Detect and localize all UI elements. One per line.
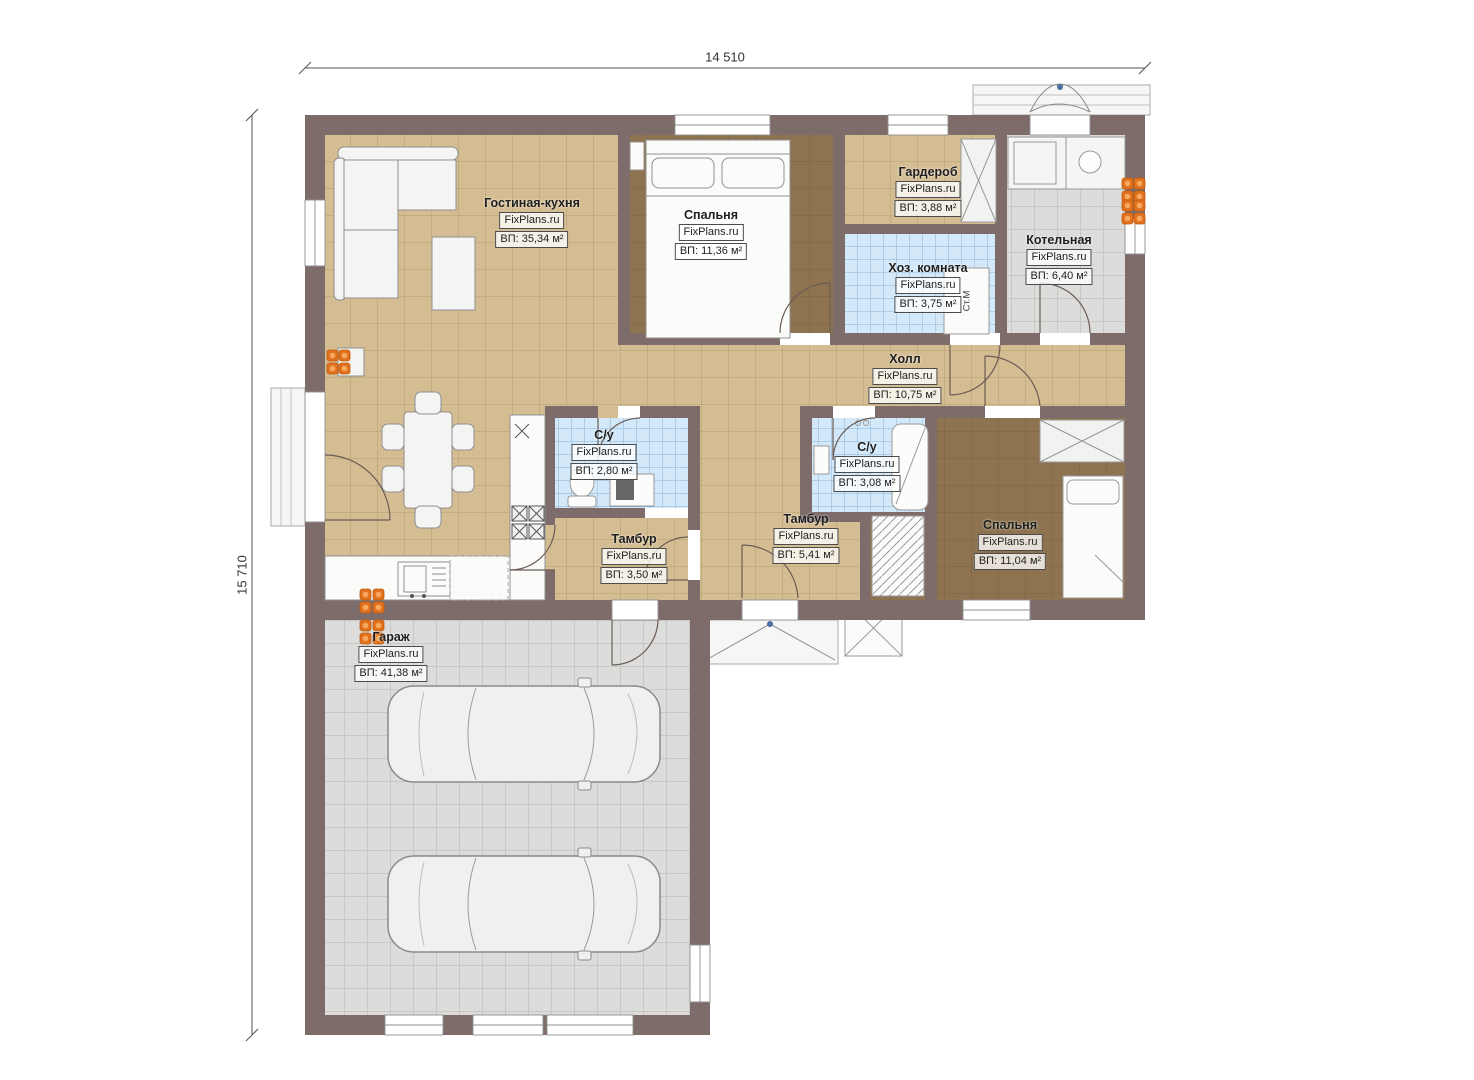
floor-plan-page: 14 510 15 710 Ст.М Гостиная-кухня FixPla…: [0, 0, 1474, 1080]
side-door-opening: [305, 392, 325, 522]
room-area: ВП: 11,36 м²: [675, 243, 747, 260]
room-brand: FixPlans.ru: [895, 181, 960, 198]
chair: [415, 506, 441, 528]
room-brand: FixPlans.ru: [571, 444, 636, 461]
room-label-vestibule-1: Тамбур FixPlans.ru ВП: 5,41 м²: [772, 512, 839, 564]
room-area: ВП: 3,88 м²: [894, 200, 961, 217]
wardrobe-room-fixtures: [961, 139, 996, 222]
room-label-bedroom-2: Спальня FixPlans.ru ВП: 11,04 м²: [974, 518, 1046, 570]
pillow: [652, 158, 714, 188]
car-1: [388, 678, 660, 790]
room-label-garage: Гараж FixPlans.ru ВП: 41,38 м²: [354, 630, 427, 682]
boiler-unit: [1014, 142, 1056, 184]
room-name: Тамбур: [772, 512, 839, 526]
chair: [452, 424, 474, 450]
room-label-living-kitchen: Гостиная-кухня FixPlans.ru ВП: 35,34 м²: [484, 196, 580, 248]
closet-shelving: [872, 516, 924, 596]
room-brand: FixPlans.ru: [834, 456, 899, 473]
room-label-wardrobe: Гардероб FixPlans.ru ВП: 3,88 м²: [894, 165, 961, 217]
room-brand: FixPlans.ru: [977, 534, 1042, 551]
room-area: ВП: 6,40 м²: [1025, 268, 1092, 285]
room-name: Котельная: [1025, 233, 1092, 247]
room-brand: FixPlans.ru: [1026, 249, 1091, 266]
room-name: Спальня: [974, 518, 1046, 532]
room-area: ВП: 2,80 м²: [570, 463, 637, 480]
room-label-bathroom-2: С/у FixPlans.ru ВП: 3,08 м²: [833, 440, 900, 492]
room-brand: FixPlans.ru: [872, 368, 937, 385]
dimension-height: 15 710: [235, 555, 250, 595]
dimension-width: 14 510: [705, 50, 745, 65]
room-area: ВП: 3,50 м²: [600, 567, 667, 584]
chair: [382, 424, 404, 450]
room-name: Тамбур: [600, 532, 667, 546]
porch-marker: [767, 621, 773, 627]
room-area: ВП: 5,41 м²: [772, 547, 839, 564]
entry-door-opening: [1030, 115, 1090, 135]
porch-marker: [1057, 84, 1063, 90]
room-brand: FixPlans.ru: [895, 277, 960, 294]
room-label-utility: Хоз. комната FixPlans.ru ВП: 3,75 м²: [888, 261, 967, 313]
coffee-table: [432, 237, 475, 310]
room-area: ВП: 3,08 м²: [833, 475, 900, 492]
sofa: [338, 147, 458, 160]
room-area: ВП: 10,75 м²: [868, 387, 941, 404]
car-2: [388, 848, 660, 960]
floor-plan-drawing: [0, 0, 1474, 1080]
boiler-room-fixtures: [1008, 137, 1125, 189]
chair: [382, 466, 404, 492]
boiler-sink: [1079, 151, 1101, 173]
nightstand: [630, 142, 644, 170]
pillow: [722, 158, 784, 188]
room-label-vestibule-2: Тамбур FixPlans.ru ВП: 3,50 м²: [600, 532, 667, 584]
room-name: С/у: [833, 440, 900, 454]
chair: [415, 392, 441, 414]
room-brand: FixPlans.ru: [499, 212, 564, 229]
dining-table: [404, 412, 452, 508]
room-name: Гостиная-кухня: [484, 196, 580, 210]
vestibule-1-floor: [700, 406, 800, 600]
room-name: Хоз. комната: [888, 261, 967, 275]
room-area: ВП: 41,38 м²: [354, 665, 427, 682]
room-brand: FixPlans.ru: [601, 548, 666, 565]
front-door-opening: [742, 600, 798, 620]
room-name: Спальня: [675, 208, 747, 222]
room-label-hall: Холл FixPlans.ru ВП: 10,75 м²: [868, 352, 941, 404]
room-area: ВП: 3,75 м²: [894, 296, 961, 313]
pillow: [1067, 480, 1119, 504]
room-brand: FixPlans.ru: [773, 528, 838, 545]
room-name: Гардероб: [894, 165, 961, 179]
chair: [452, 466, 474, 492]
room-label-bedroom-1: Спальня FixPlans.ru ВП: 11,36 м²: [675, 208, 747, 260]
garage-side-door-opening: [612, 600, 658, 620]
room-label-boiler: Котельная FixPlans.ru ВП: 6,40 м²: [1025, 233, 1092, 285]
room-name: С/у: [570, 428, 637, 442]
room-brand: FixPlans.ru: [358, 646, 423, 663]
room-name: Холл: [868, 352, 941, 366]
room-label-bathroom-1: С/у FixPlans.ru ВП: 2,80 м²: [570, 428, 637, 480]
room-area: ВП: 35,34 м²: [495, 231, 568, 248]
washbasin: [814, 446, 829, 474]
room-brand: FixPlans.ru: [678, 224, 743, 241]
room-area: ВП: 11,04 м²: [974, 553, 1046, 570]
room-name: Гараж: [354, 630, 427, 644]
